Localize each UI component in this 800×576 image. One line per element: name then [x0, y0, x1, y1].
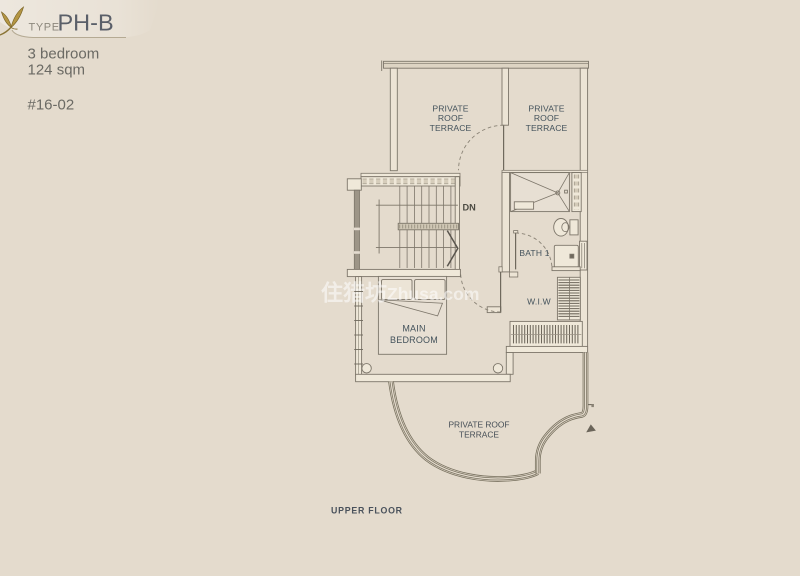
svg-text:TERRACE: TERRACE — [459, 430, 499, 440]
svg-text:3 bedroom: 3 bedroom — [28, 46, 100, 63]
svg-text:DN: DN — [463, 203, 477, 213]
svg-text:PH-B: PH-B — [58, 10, 114, 36]
svg-text:TERRACE: TERRACE — [430, 123, 472, 133]
svg-text:MAIN: MAIN — [402, 324, 425, 334]
svg-text:ROOF: ROOF — [534, 113, 559, 123]
svg-text:BEDROOM: BEDROOM — [390, 335, 438, 345]
svg-text:UPPER FLOOR: UPPER FLOOR — [331, 506, 403, 516]
svg-text:PRIVATE ROOF: PRIVATE ROOF — [448, 420, 509, 430]
svg-text:TYPE: TYPE — [29, 22, 60, 34]
svg-text:124 sqm: 124 sqm — [28, 62, 86, 79]
svg-text:PRIVATE: PRIVATE — [528, 104, 564, 114]
svg-text:W.I.W: W.I.W — [527, 297, 551, 307]
svg-text:PRIVATE: PRIVATE — [432, 104, 468, 114]
svg-text:ROOF: ROOF — [438, 113, 463, 123]
svg-text:住猎坊Zhusa.com: 住猎坊Zhusa.com — [321, 281, 479, 306]
svg-text:#16-02: #16-02 — [28, 97, 75, 114]
svg-text:BATH 1: BATH 1 — [519, 248, 549, 258]
svg-text:TERRACE: TERRACE — [526, 123, 568, 133]
